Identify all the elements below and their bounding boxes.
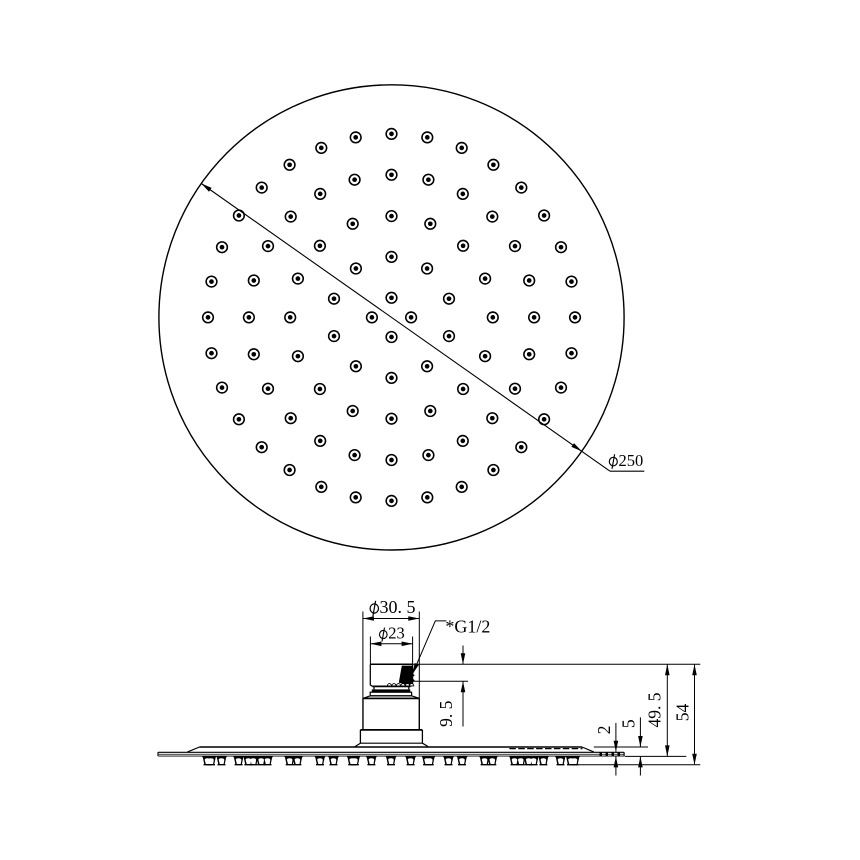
svg-text:2: 2 bbox=[594, 726, 614, 735]
svg-text:49. 5: 49. 5 bbox=[645, 692, 665, 727]
svg-text:*G1/2: *G1/2 bbox=[445, 616, 490, 636]
svg-text:5: 5 bbox=[619, 719, 639, 728]
svg-text:30. 5: 30. 5 bbox=[380, 597, 416, 617]
svg-text:54: 54 bbox=[673, 704, 693, 722]
svg-text:250: 250 bbox=[619, 451, 644, 470]
svg-text:23: 23 bbox=[388, 624, 405, 643]
svg-text:9. 5: 9. 5 bbox=[436, 700, 456, 727]
